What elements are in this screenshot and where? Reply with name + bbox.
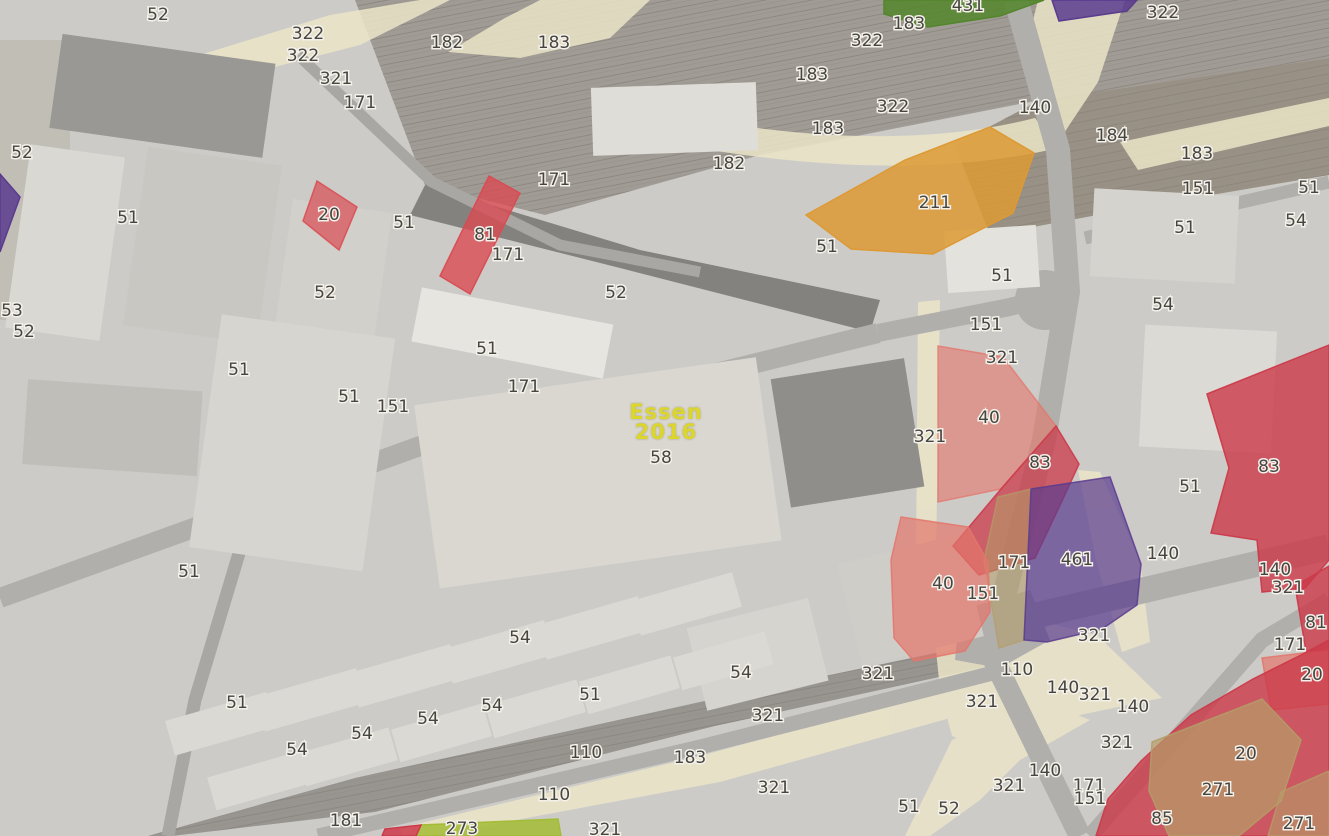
map-label-81: 81 [1305,613,1327,633]
map-label-51: 51 [178,562,200,582]
map-label-20: 20 [1301,665,1323,685]
map-label-51: 51 [1174,218,1196,238]
map-label-321: 321 [966,692,998,712]
map-label-171: 171 [508,377,540,397]
map-label-181: 181 [330,811,362,831]
map-label-52: 52 [13,322,35,342]
map-label-40: 40 [978,408,1000,428]
map-label-171: 171 [1274,635,1306,655]
map-label-51: 51 [991,266,1013,286]
map-label-431: 431 [952,0,984,16]
map-label-461: 461 [1061,550,1093,570]
map-label-54: 54 [730,663,752,683]
map-label-322: 322 [292,24,324,44]
map-label-151: 151 [1074,789,1106,809]
map-label-321: 321 [1078,626,1110,646]
map-label-51: 51 [338,387,360,407]
map-label-83: 83 [1029,453,1051,473]
map-label-20: 20 [1235,744,1257,764]
map-label-52: 52 [605,283,627,303]
map-label-54: 54 [481,696,503,716]
map-label-110: 110 [538,785,570,805]
map-label-85: 85 [1151,809,1173,829]
map-label-54: 54 [417,709,439,729]
map-label-321: 321 [993,776,1025,796]
map-label-140: 140 [1019,98,1051,118]
map-label-140: 140 [1029,761,1061,781]
map-label-171: 171 [538,170,570,190]
map-label-183: 183 [812,119,844,139]
map-label-54: 54 [1152,295,1174,315]
map-label-321: 321 [589,820,621,836]
map-label-183: 183 [674,748,706,768]
map-label-321: 321 [320,69,352,89]
map-label-51: 51 [579,685,601,705]
map-label-81: 81 [474,225,496,245]
aerial-map: 5232232232117118218332218332218318217143… [0,0,1329,836]
map-label-110: 110 [570,743,602,763]
map-label-322: 322 [1147,3,1179,23]
map-label-321: 321 [862,664,894,684]
map-label-322: 322 [877,97,909,117]
map-label-83: 83 [1258,457,1280,477]
map-label-51: 51 [476,339,498,359]
map-canvas[interactable]: 5232232232117118218332218332218318217143… [0,0,1329,836]
map-label-52: 52 [11,143,33,163]
map-label-273: 273 [446,819,478,836]
map-label-321: 321 [914,427,946,447]
map-label-171: 171 [998,553,1030,573]
map-label-183: 183 [796,65,828,85]
map-label-321: 321 [1272,578,1304,598]
map-label-51: 51 [898,797,920,817]
map-label-51: 51 [1179,477,1201,497]
map-label-51: 51 [117,208,139,228]
map-label-183: 183 [538,33,570,53]
map-label-211: 211 [919,193,951,213]
map-label-51: 51 [393,213,415,233]
map-label-321: 321 [752,706,784,726]
map-label-321: 321 [1101,733,1133,753]
map-label-321: 321 [1079,685,1111,705]
map-label-140: 140 [1047,678,1079,698]
map-label-322: 322 [287,46,319,66]
map-label-322: 322 [851,31,883,51]
map-label-54: 54 [286,740,308,760]
map-label-171: 171 [492,245,524,265]
map-label-182: 182 [431,33,463,53]
map-label-54: 54 [509,628,531,648]
map-label-140: 140 [1117,697,1149,717]
map-label-271: 271 [1283,814,1315,834]
map-label-51: 51 [228,360,250,380]
map-label-58: 58 [650,448,672,468]
map-label-171: 171 [344,93,376,113]
map-label-183: 183 [1181,144,1213,164]
map-label-53: 53 [1,301,23,321]
map-label-321: 321 [758,778,790,798]
map-label-52: 52 [147,5,169,25]
map-label-40: 40 [932,574,954,594]
map-label-271: 271 [1202,780,1234,800]
map-label-182: 182 [713,154,745,174]
map-label-151: 151 [1182,179,1214,199]
map-label-54: 54 [1285,211,1307,231]
map-label-140: 140 [1259,560,1291,580]
map-label-151: 151 [377,397,409,417]
map-label-54: 54 [351,724,373,744]
map-label-52: 52 [938,799,960,819]
map-label-184: 184 [1096,126,1128,146]
map-label-20: 20 [318,205,340,225]
map-label-52: 52 [314,283,336,303]
map-label-140: 140 [1147,544,1179,564]
map-label-183: 183 [893,14,925,34]
map-label-151: 151 [970,315,1002,335]
map-label-51: 51 [226,693,248,713]
map-label-151: 151 [967,584,999,604]
map-label-51: 51 [1298,178,1320,198]
map-label-110: 110 [1001,660,1033,680]
map-label-51: 51 [816,237,838,257]
map-label-321: 321 [986,348,1018,368]
